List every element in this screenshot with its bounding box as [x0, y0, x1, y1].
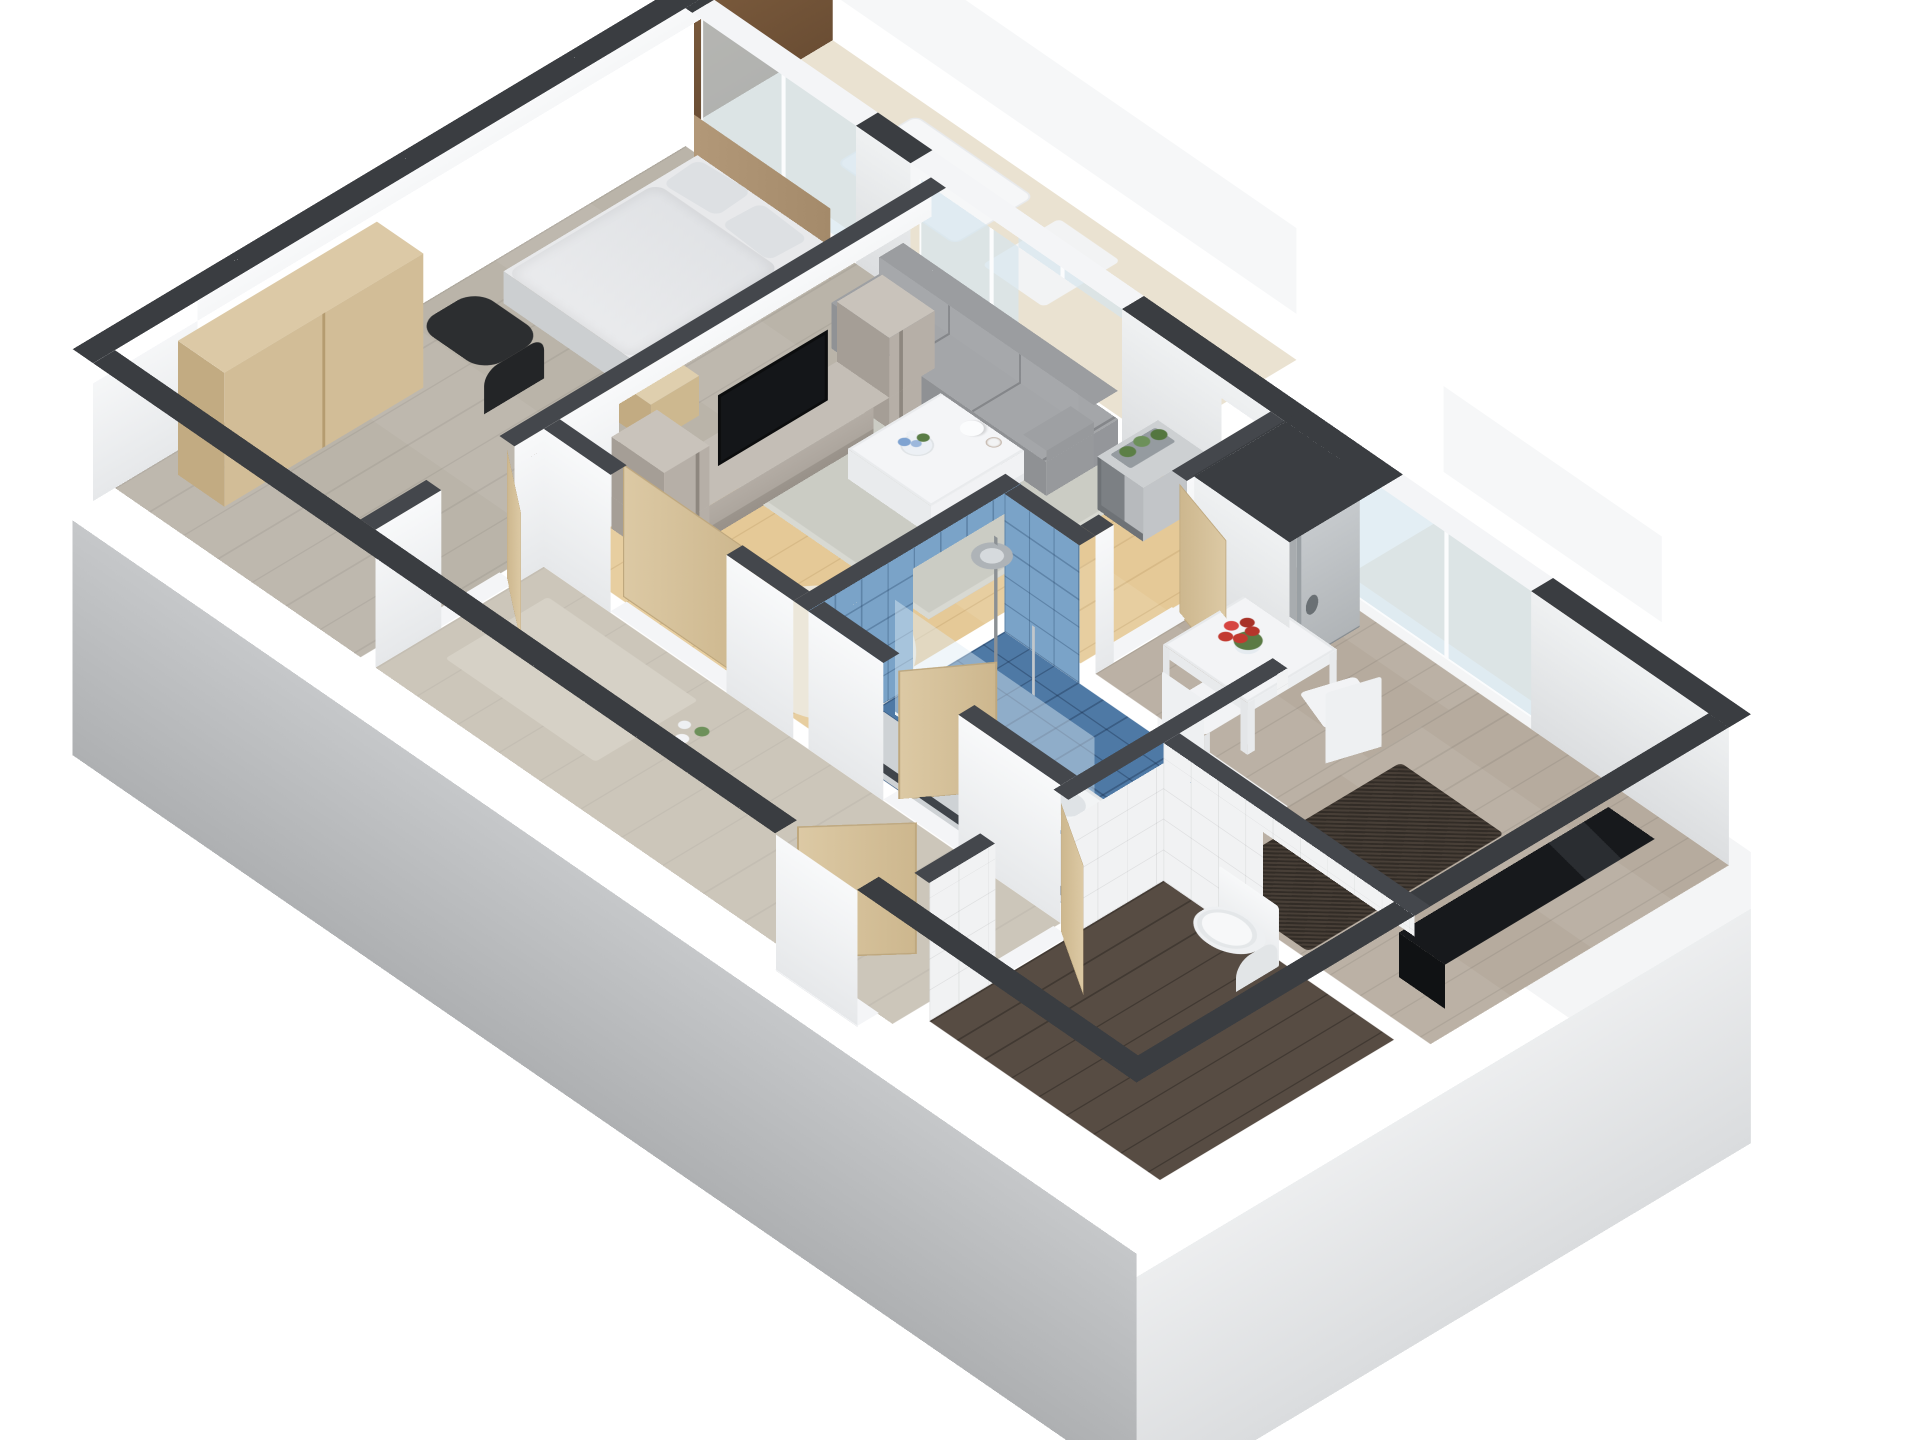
apartment-isometric-scene: [115, 146, 1708, 1193]
coffee-cup: [982, 435, 1005, 450]
flower-bouquet: [883, 420, 944, 459]
kitchen-north-wall-face-1: [1095, 525, 1113, 674]
window-mullion: [1444, 521, 1448, 659]
hand-shower: [1032, 625, 1035, 696]
floor-plan-render: [0, 0, 1920, 1440]
dining-chair-2-backrest: [1325, 676, 1381, 763]
